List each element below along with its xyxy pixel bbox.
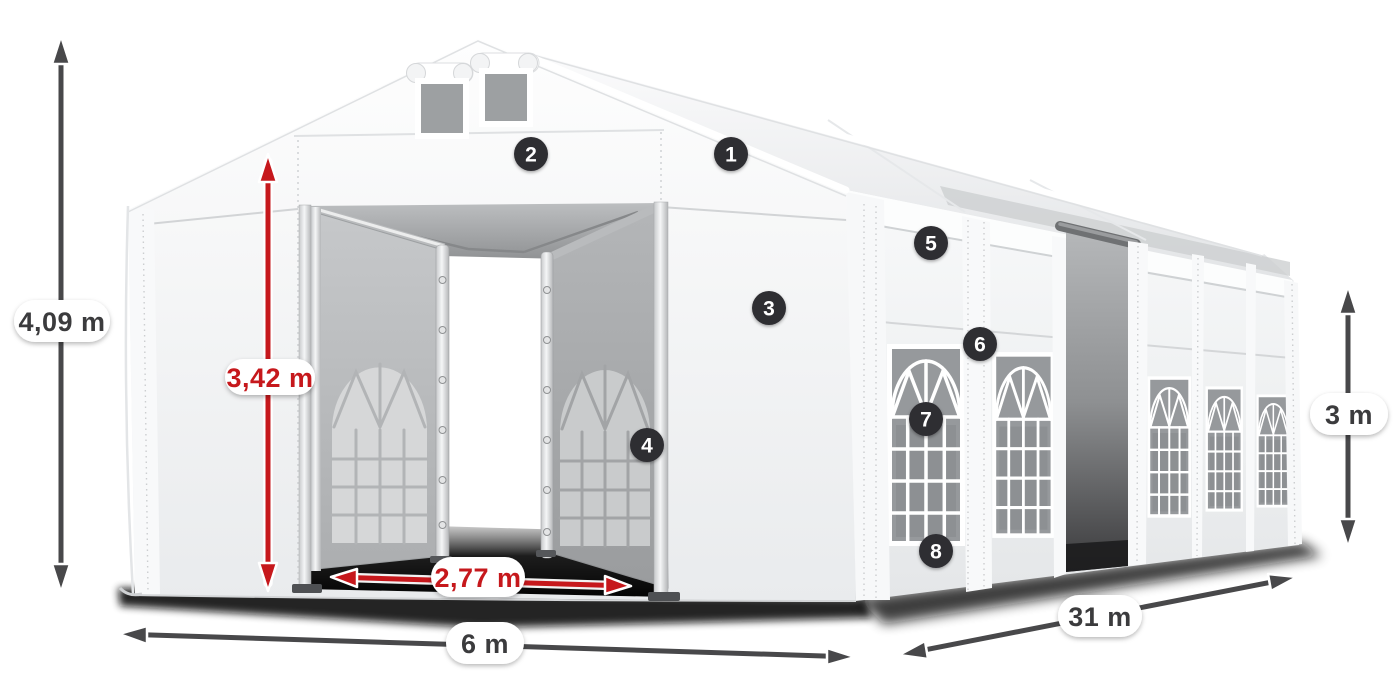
vent-window-left [418, 81, 466, 136]
callout-badge-7[interactable]: 7 [909, 402, 943, 436]
tent-illustration [120, 35, 1302, 601]
svg-text:1: 1 [725, 144, 737, 167]
svg-text:7: 7 [920, 409, 932, 432]
tent-dimension-diagram: 4,09 m 3,42 m 2,77 m 6 m 31 m [0, 0, 1400, 700]
svg-text:8: 8 [930, 541, 942, 564]
arrowhead-left [899, 641, 928, 659]
arrowhead-up [52, 36, 70, 64]
dimension-label-side-height: 3 m [1325, 400, 1373, 430]
entrance-door-right [536, 204, 668, 588]
arrowhead-up [1339, 286, 1357, 314]
door-pole [541, 252, 553, 558]
svg-text:2: 2 [525, 144, 537, 167]
dimension-label-length: 31 m [1068, 602, 1132, 632]
arrowhead-right [1268, 574, 1297, 591]
callout-badge-1[interactable]: 1 [714, 137, 748, 171]
side-window-5 [1257, 395, 1290, 507]
callout-badge-3[interactable]: 3 [752, 291, 786, 325]
callout-badge-5[interactable]: 5 [914, 226, 948, 260]
dimension-label-entrance-width: 2,77 m [434, 563, 521, 593]
dimension-front-width: 6 m [119, 622, 855, 665]
door-pole [436, 245, 449, 559]
dimension-label-entrance-height: 3,42 m [226, 363, 313, 393]
arrowhead-down [1339, 519, 1357, 547]
callout-badge-8[interactable]: 8 [919, 534, 953, 568]
callout-badge-2[interactable]: 2 [514, 137, 548, 171]
entrance-opening [292, 202, 680, 601]
arrowhead-right [827, 648, 855, 665]
diagram-canvas: 4,09 m 3,42 m 2,77 m 6 m 31 m [0, 0, 1400, 700]
vent-window-right [482, 71, 530, 124]
callout-badge-4[interactable]: 4 [630, 428, 664, 462]
dimension-side-height: 3 m [1310, 286, 1388, 547]
entrance-pole-right [654, 202, 668, 598]
dimension-label-front-width: 6 m [461, 629, 509, 659]
arrowhead-down [52, 564, 70, 592]
svg-text:4: 4 [641, 435, 653, 458]
svg-text:6: 6 [974, 334, 986, 357]
side-window-4 [1206, 387, 1242, 511]
side-window-2 [993, 353, 1054, 537]
dimension-label-total-height: 4,09 m [18, 307, 105, 337]
svg-text:3: 3 [763, 298, 775, 321]
arrowhead-left [119, 626, 147, 644]
dimension-total-height: 4,09 m [14, 36, 110, 592]
svg-text:5: 5 [925, 233, 937, 256]
side-window-3 [1148, 377, 1191, 517]
side-window-1 [888, 345, 964, 545]
callout-badge-6[interactable]: 6 [963, 327, 997, 361]
side-door-opening [1060, 224, 1136, 572]
entrance-pole-left [299, 205, 311, 590]
entrance-door-left [311, 207, 452, 571]
